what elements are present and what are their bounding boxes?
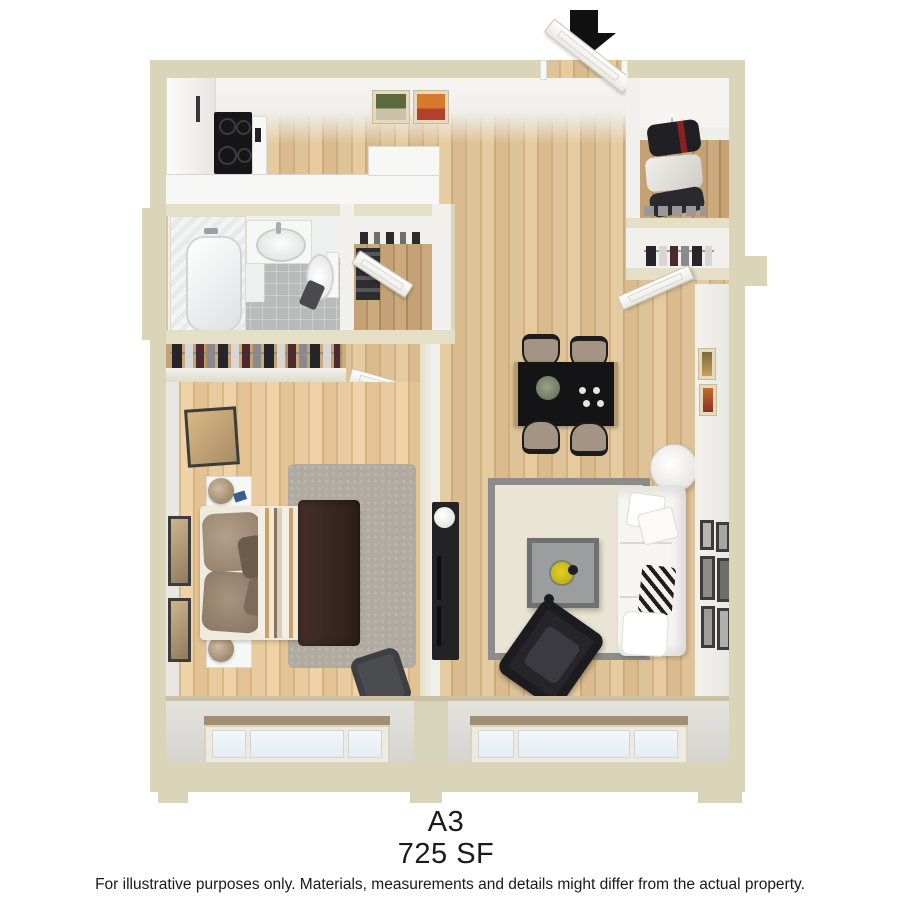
floor-plan: A3 725 SF For illustrative purposes only…	[0, 0, 900, 900]
striped-duvet	[258, 508, 302, 638]
exterior-wall-left-tab	[142, 208, 152, 340]
bedroom-window-pane	[348, 730, 382, 758]
disclaimer: For illustrative purposes only. Material…	[0, 876, 900, 894]
exterior-wall-bottom	[150, 762, 745, 792]
window-wall-column	[414, 701, 448, 762]
living-window-sill	[470, 716, 688, 725]
floor-lamp	[650, 444, 698, 492]
exterior-wall-top	[150, 60, 540, 78]
living-window-pane	[478, 730, 514, 758]
table-decor	[568, 565, 578, 575]
foundation-tab	[698, 792, 742, 803]
bathroom-closet-wall	[340, 204, 354, 344]
kitchen-counter	[162, 174, 440, 208]
leaning-mirror	[184, 406, 240, 467]
sink-faucet-icon	[276, 222, 281, 234]
place-setting	[583, 400, 590, 407]
gallery-frame	[700, 556, 715, 600]
dining-wall-art	[698, 348, 716, 380]
dining-wall-art	[699, 384, 717, 416]
place-setting	[597, 400, 604, 407]
place-setting	[579, 387, 586, 394]
burner-icon	[237, 148, 252, 163]
dining-chair	[570, 422, 608, 456]
console-speaker-icon	[434, 507, 455, 528]
entry-closet-wall	[626, 72, 640, 280]
burner-icon	[236, 120, 251, 135]
entry-door-jamb	[540, 60, 547, 80]
living-window-pane	[518, 730, 630, 758]
exterior-wall-left	[150, 60, 166, 792]
console-handle	[437, 556, 441, 600]
kitchen-peninsula	[368, 146, 440, 176]
bathroom-wall	[150, 204, 455, 216]
hall-closet-items	[360, 232, 420, 244]
plan-area: 725 SF	[150, 838, 742, 871]
dining-chair	[522, 420, 560, 454]
refrigerator-cabinet	[166, 76, 216, 182]
exterior-wall-right	[729, 60, 745, 792]
bedroom-closet-clothes	[172, 344, 340, 368]
burner-icon	[218, 146, 237, 165]
bathroom-south-wall	[150, 330, 455, 344]
bedroom-wall-art	[168, 516, 191, 586]
closet-front-wall	[150, 368, 346, 382]
dining-table	[514, 362, 618, 426]
shoe-row	[644, 206, 706, 216]
hall-wall	[432, 204, 455, 344]
bathtub	[186, 236, 242, 332]
table-lamp	[208, 478, 234, 504]
gallery-frame	[716, 522, 730, 552]
foundation-tab	[410, 792, 442, 803]
striped-pillow	[638, 564, 677, 615]
tub-faucet-icon	[204, 228, 218, 234]
centerpiece-plant	[536, 376, 560, 400]
console-handle	[437, 606, 441, 646]
gallery-frame	[701, 606, 715, 648]
sofa-throw	[621, 611, 669, 657]
cabinet-handle	[196, 96, 200, 122]
entry-closet-lower-clothes	[646, 246, 712, 266]
kitchen-wall-art	[413, 90, 449, 124]
kitchen-wall-art	[372, 90, 410, 124]
gallery-frame	[700, 520, 714, 550]
plan-name: A3	[150, 806, 742, 839]
entry-arrow-icon	[570, 10, 598, 34]
bedroom-window-sill	[204, 716, 390, 725]
foundation-tab	[158, 792, 188, 803]
sink-basin	[256, 228, 306, 262]
living-window-pane	[634, 730, 678, 758]
bedroom-window-pane	[212, 730, 246, 758]
brown-blanket	[298, 500, 360, 646]
range-panel	[255, 128, 261, 142]
place-setting	[593, 387, 600, 394]
exterior-wall-top	[628, 60, 745, 78]
bedroom-window-pane	[250, 730, 344, 758]
closet-divider-wall	[626, 218, 729, 228]
bedroom-wall-art	[168, 598, 191, 662]
exterior-wall-right-tab	[745, 256, 767, 286]
burner-icon	[219, 118, 236, 135]
range	[252, 116, 267, 178]
